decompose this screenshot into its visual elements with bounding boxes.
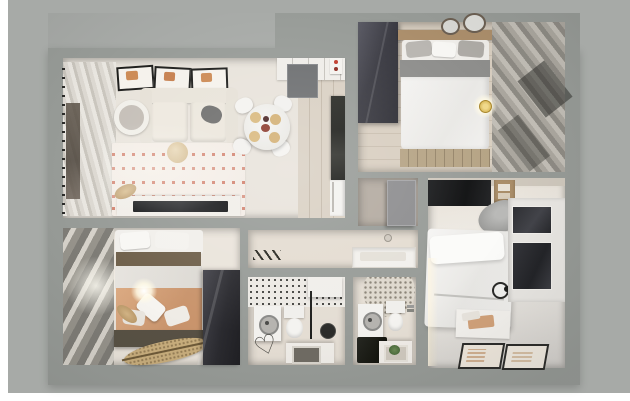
art-orange-motif [201,73,212,82]
pendant-light [479,100,492,113]
bed-gray-band [400,60,490,77]
curtain-rail [62,62,65,214]
bedroom-top-right [358,22,565,172]
bedroom-mid-right [428,178,565,368]
pillow-white [119,231,150,251]
floor-frame [502,344,550,370]
window-glass-dark [512,206,552,234]
toilet-bowl [388,313,403,331]
washing-machine [358,304,383,337]
bathroom-1: ♡ [248,277,345,365]
tv [133,201,228,212]
shower-divider [310,291,312,339]
bedroom-bottom-left [63,228,240,365]
toilet-tank [386,301,405,313]
fruit-bowl [261,124,270,132]
sofa-arm-right [226,88,238,144]
hall-closet [358,178,418,226]
tv-panel [428,180,491,206]
foot-bench [400,149,490,167]
wall-lamp-icon [384,234,392,242]
shelf-box [498,184,510,191]
round-mirror-icon [463,13,486,33]
round-side-table [114,100,149,135]
art-orange-motif [164,72,175,82]
pillow-white [154,231,189,250]
frame-sketch [511,351,533,362]
plate [269,132,280,143]
dark-wardrobe [358,22,398,123]
toilet-tank [284,306,304,318]
floor-frame [458,343,506,369]
bed-olive-band [116,252,201,266]
pillow-white [432,41,457,58]
plate [270,114,281,125]
sofa-cushion [152,102,188,142]
shower-head-icon [320,323,336,339]
plate [249,131,260,142]
red-knob-icon [334,60,338,64]
window-glass-dark [512,242,552,290]
bathroom-2 [353,277,416,365]
sink-basin [292,346,321,364]
ceiling-light-glow [131,278,157,304]
sofa-back [143,88,235,103]
entry-door [287,64,318,98]
bottle [263,116,269,122]
plate [250,112,261,123]
round-mirror-icon [441,18,460,35]
fridge-handle [332,182,334,212]
washer-knob-icon [368,318,372,322]
pillow-gray [457,40,484,58]
closet-door-panel [387,180,416,226]
toilet-bowl [286,318,303,338]
plant-icon [389,345,400,355]
window-dark [66,103,80,199]
coat-rack [253,250,281,260]
pillow-white [429,231,505,264]
pillow-gray [405,40,433,59]
blind-light-glow [65,256,117,316]
kitchen-counter [331,96,345,180]
pouf [167,142,188,163]
washer-knob-icon [265,321,269,325]
heart-bath-mat-icon: ♡ [251,327,288,361]
frame-sketch [466,349,486,362]
art-orange-motif [126,71,139,81]
floor-plan-render: ♡ [0,0,630,401]
bed-duvet [115,266,202,289]
corridor [248,230,418,268]
washer-door-icon [363,312,382,331]
console-inner-line [360,252,406,261]
faucet-icon [407,305,414,308]
living-room [63,58,345,218]
dining-table [244,104,290,150]
red-knob-icon [334,67,338,71]
shower-niche-shelf [308,277,342,297]
